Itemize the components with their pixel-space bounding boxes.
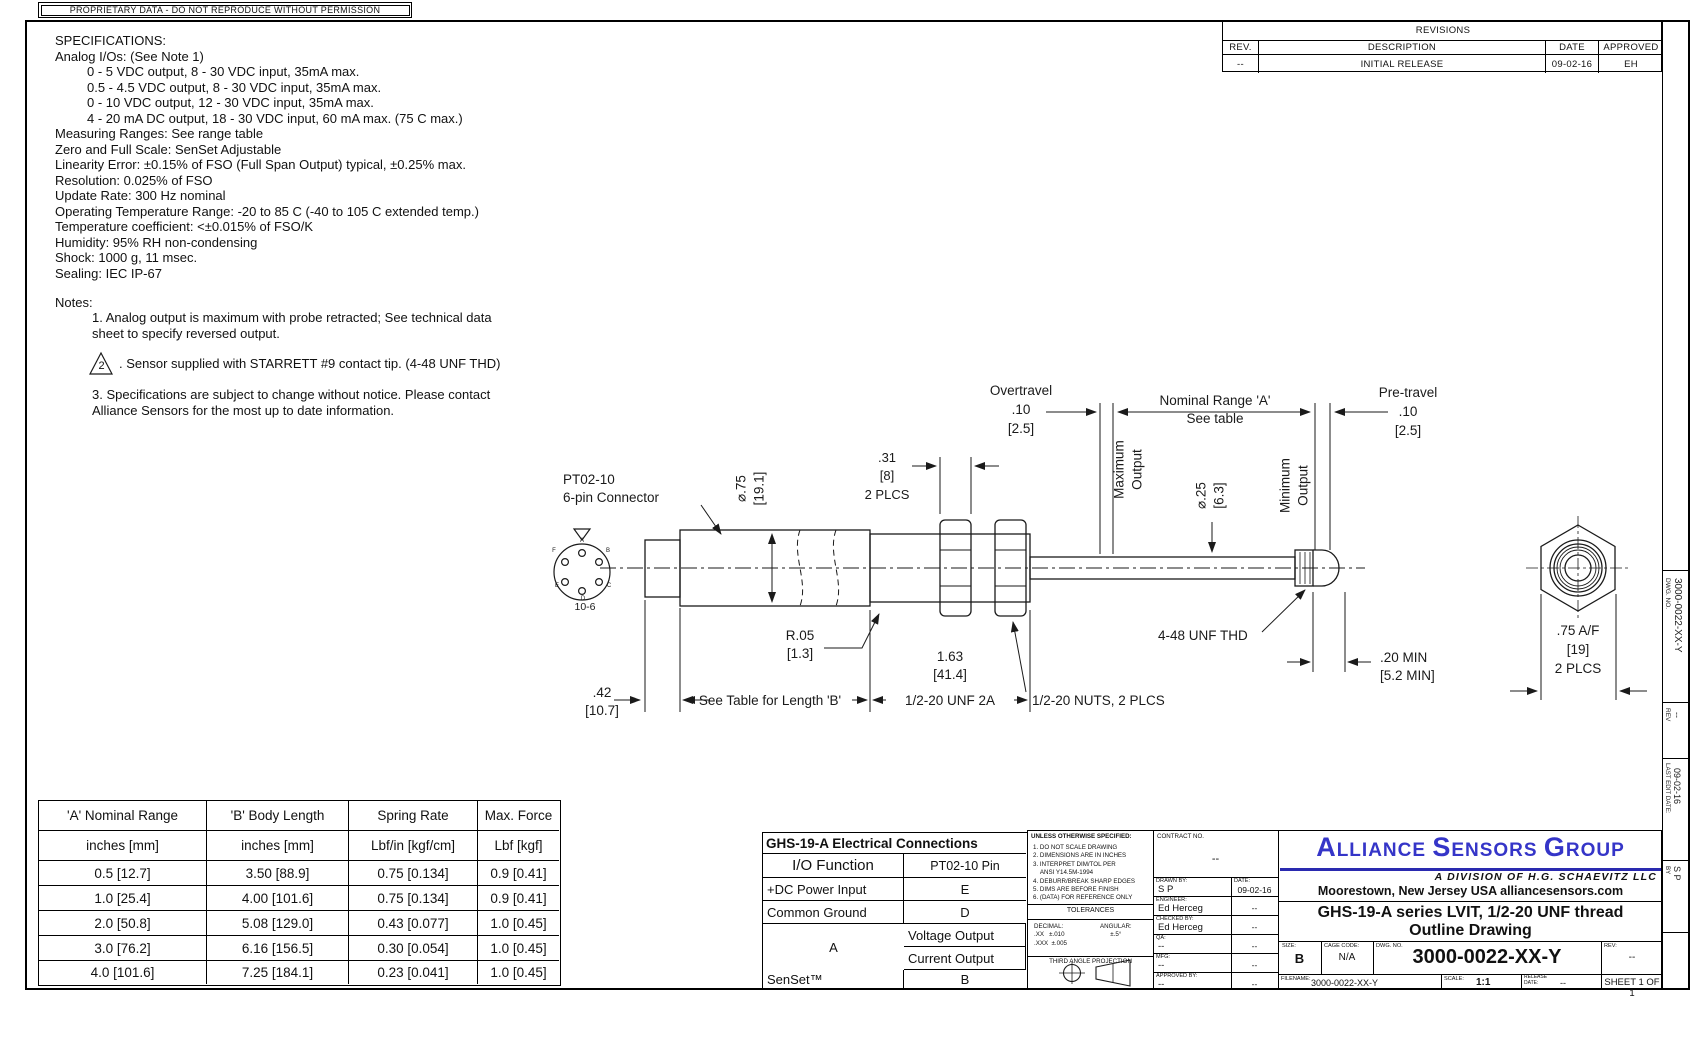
drawing-title-line2: Outline Drawing [1280,922,1661,940]
range-table: 'A' Nominal Range 'B' Body Length Spring… [38,800,561,986]
range-cell: 0.75 [0.134] [349,886,478,911]
spec-line: Measuring Ranges: See range table [55,126,630,142]
spec-line: Sealing: IEC IP-67 [55,266,630,282]
range-col-header: 'A' Nominal Range [39,801,207,831]
range-cell: 0.43 [0.077] [349,911,478,936]
divider [1662,570,1690,571]
logo-text: A [1316,832,1337,862]
range-cell: 6.16 [156.5] [207,936,349,961]
electrical-pin: E [904,878,1026,901]
size-label: SIZE: [1282,943,1296,949]
scale-label: SCALE: [1444,976,1464,982]
electrical-col-function: I/O Function [763,854,904,878]
rev-label: REV: [1604,943,1617,949]
revision-cell: INITIAL RELEASE [1259,55,1546,73]
divider [1153,953,1278,954]
range-unit: inches [mm] [207,831,349,861]
signoff-date-label: DATE: [1234,878,1250,884]
connector-pin-a: A [577,538,587,544]
company-division: A DIVISION OF H.G. SCHAEVITZ LLC [1280,871,1657,883]
divider [1441,974,1442,988]
edge-last-edit-label: LAST EDIT DATE: [1664,763,1671,814]
tolerances-label: TOLERANCES [1028,907,1153,914]
spec-line: Shock: 1000 g, 11 msec. [55,250,630,266]
dim-hex-af: .75 A/F [19] 2 PLCS [1540,621,1616,678]
edge-last-edit-date: 09-02-16 [1672,768,1682,804]
spec-line: Update Rate: 300 Hz nominal [55,188,630,204]
label-nuts: 1/2-20 NUTS, 2 PLCS [1032,692,1202,710]
signoff-name: -- [1158,960,1164,971]
signoff-date: -- [1231,960,1278,970]
title-block: UNLESS OTHERWISE SPECIFIED: 1. DO NOT SC… [1027,830,1662,990]
filename-label: FILENAME: [1281,976,1311,982]
dim-overtravel: Overtravel .10 [2.5] [972,381,1070,438]
contract-label: CONTRACT NO. [1157,833,1204,840]
cage-code-value: N/A [1321,952,1373,963]
spec-line: 0.5 - 4.5 VDC output, 8 - 30 VDC input, … [55,80,630,96]
dim-nut-width: .31 [8] 2 PLCS [856,449,918,504]
spec-line: Operating Temperature Range: -20 to 85 C… [55,204,630,220]
dim-pretravel: Pre-travel .10 [2.5] [1360,383,1456,440]
connector-pin-f: F [549,548,559,554]
electrical-col-pin: PT02-10 Pin [904,854,1026,878]
edge-strip [1662,20,1690,990]
range-cell: 0.9 [0.41] [478,886,559,911]
note-1: 1. Analog output is maximum with probe r… [92,310,582,342]
electrical-pin: B [904,970,1026,989]
dim-cap-length: .42 [10.7] [573,684,631,719]
revision-cell: EH [1599,55,1663,73]
electrical-connections-table: GHS-19-A Electrical Connections I/O Func… [762,832,1028,990]
tolerance-decimal: DECIMAL: .XX ±.010 .XXX ±.005 [1034,923,1067,948]
range-col-header: Max. Force [478,801,559,831]
dwg-no-value: 3000-0022-XX-Y [1373,946,1601,969]
electrical-pin: D [904,901,1026,924]
divider [1278,901,1663,902]
scale-value: 1:1 [1476,977,1490,988]
range-unit: Lbf/in [kgf/cm] [349,831,478,861]
divider [1521,974,1522,988]
drawing-sheet: { "banner": "PROPRIETARY DATA - DO NOT R… [0,0,1697,1057]
company-logo: ALLIANCE SENSORS GROUP [1280,832,1661,863]
dim-thread-length: 1.63 [41.4] [921,648,979,683]
divider [1028,904,1153,905]
drawing-title-line1: GHS-19-A series LVIT, 1/2-20 UNF thread [1280,904,1661,922]
range-cell: 1.0 [0.45] [478,961,559,984]
electrical-function: Voltage Output [904,924,1026,947]
signoff-date: -- [1231,941,1278,951]
revision-cell: -- [1223,55,1259,73]
dim-fillet-radius: R.05 [1.3] [777,627,823,662]
divider [1662,860,1690,861]
unless-items: 1. DO NOT SCALE DRAWING 2. DIMENSIONS AR… [1033,844,1135,903]
range-cell: 3.50 [88.9] [207,861,349,886]
sheet-number: SHEET 1 OF 1 [1601,977,1663,999]
spec-line: 4 - 20 mA DC output, 18 - 30 VDC input, … [55,111,630,127]
proprietary-banner-text: PROPRIETARY DATA - DO NOT REPRODUCE WITH… [41,5,410,16]
range-cell: 1.0 [0.45] [478,911,559,936]
connector-pin-c: C [604,583,614,589]
contract-value: -- [1153,853,1278,865]
signoff-name: -- [1158,941,1164,952]
electrical-function: Common Ground [763,901,904,924]
spec-line: Resolution: 0.025% of FSO [55,173,630,189]
range-cell: 1.0 [25.4] [39,886,207,911]
range-cell: 5.08 [129.0] [207,911,349,936]
company-address: Moorestown, New Jersey USA alliancesenso… [1280,884,1661,898]
signoff-name: Ed Herceg [1158,922,1203,933]
range-unit: Lbf [kgf] [478,831,559,861]
release-label: RELEASE DATE: [1524,975,1547,986]
notes-title: Notes: [55,295,93,311]
divider [1662,702,1690,703]
revisions-col-description: DESCRIPTION [1259,41,1546,55]
range-cell: 4.00 [101.6] [207,886,349,911]
connector-code: 10-6 [563,601,607,615]
unless-header: UNLESS OTHERWISE SPECIFIED: [1031,833,1132,840]
range-cell: 0.9 [0.41] [478,861,559,886]
range-cell: 0.5 [12.7] [39,861,207,886]
note-2: . Sensor supplied with STARRETT #9 conta… [119,356,599,372]
spec-line: Temperature coefficient: <±0.015% of FSO… [55,219,630,235]
signoff-date: 09-02-16 [1231,885,1278,895]
range-col-header: 'B' Body Length [207,801,349,831]
range-unit: inches [mm] [39,831,207,861]
range-cell: 0.30 [0.054] [349,936,478,961]
divider [1278,974,1663,975]
spec-line: Humidity: 95% RH non-condensing [55,235,630,251]
edge-dwg-no: 3000-0022-XX-Y [1672,578,1683,653]
filename-value: 3000-0022-XX-Y [1311,978,1378,988]
revisions-table: REVISIONS REV. DESCRIPTION DATE APPROVED… [1222,20,1662,72]
range-cell: 0.23 [0.041] [349,961,478,984]
edge-by-label: BY [1664,866,1671,874]
revisions-title: REVISIONS [1223,21,1663,41]
label-minimum-output: Minimum Output [1276,450,1311,522]
revision-cell: 09-02-16 [1546,55,1599,73]
release-value: -- [1560,978,1566,988]
divider [1153,934,1278,935]
spec-line: 0 - 10 VDC output, 12 - 30 VDC input, 35… [55,95,630,111]
electrical-pin: A [763,924,904,970]
divider [1662,932,1690,933]
range-cell: 1.0 [0.45] [478,936,559,961]
signoff-date: -- [1231,903,1278,913]
specifications-block: SPECIFICATIONS: Analog I/Os: (See Note 1… [55,33,630,281]
note-3: 3. Specifications are subject to change … [92,387,582,419]
dim-rod-diameter: ⌀.25 [6.3] [1192,472,1227,520]
spec-line: Zero and Full Scale: SenSet Adjustable [55,142,630,158]
dim-nominal-range: Nominal Range 'A' See table [1142,392,1288,427]
proprietary-banner: PROPRIETARY DATA - DO NOT REPRODUCE WITH… [38,2,412,18]
range-cell: 0.75 [0.134] [349,861,478,886]
divider [1028,919,1153,920]
projection-label: THIRD ANGLE PROJECTION [1028,958,1153,965]
revisions-col-approved: APPROVED [1599,41,1663,55]
signoff-name: Ed Herceg [1158,903,1203,914]
divider [1662,758,1690,759]
dim-body-length: See Table for Length 'B' [690,692,850,710]
rev-value: -- [1601,952,1663,963]
tolerance-angular: ANGULAR: ±.5° [1100,923,1132,940]
electrical-function: +DC Power Input [763,878,904,901]
revisions-col-date: DATE [1546,41,1599,55]
range-col-header: Spring Rate [349,801,478,831]
spec-line: Linearity Error: ±0.15% of FSO (Full Spa… [55,157,630,173]
label-thread-spec: 1/2-20 UNF 2A [888,692,1012,710]
size-value: B [1278,951,1321,966]
edge-dwg-label: DWG. NO. [1664,578,1671,609]
signoff-name: -- [1158,979,1164,990]
specifications-title: SPECIFICATIONS: [55,33,630,49]
connector-pin-b: B [603,548,613,554]
dim-body-diameter: ⌀.75 [19.1] [732,466,767,512]
note-2-flag: 2 [95,358,108,374]
signoff-name: S P [1158,884,1173,895]
edge-by-value: S P [1672,866,1682,881]
electrical-function: Current Output [904,947,1026,970]
edge-rev-value: -- [1672,712,1682,718]
range-cell: 7.25 [184.1] [207,961,349,984]
range-cell: 4.0 [101.6] [39,961,207,984]
spec-line: Analog I/Os: (See Note 1) [55,49,630,65]
electrical-table-title: GHS-19-A Electrical Connections [763,833,1026,854]
connector-pin-e: E [552,583,562,589]
electrical-function: SenSet™ [763,970,904,989]
cage-code-label: CAGE CODE: [1324,943,1359,949]
connector-label: PT02-10 6-pin Connector [563,471,723,506]
label-maximum-output: Maximum Output [1110,434,1145,506]
spec-line: 0 - 5 VDC output, 8 - 30 VDC input, 35mA… [55,64,630,80]
range-cell: 2.0 [50.8] [39,911,207,936]
edge-rev-label: REV [1664,708,1671,721]
range-cell: 3.0 [76.2] [39,936,207,961]
label-tip-thread: 4-48 UNF THD [1158,627,1268,645]
revisions-col-rev: REV. [1223,41,1259,55]
signoff-date: -- [1231,979,1278,989]
dim-tip-min: .20 MIN [5.2 MIN] [1380,649,1464,684]
signoff-date: -- [1231,922,1278,932]
